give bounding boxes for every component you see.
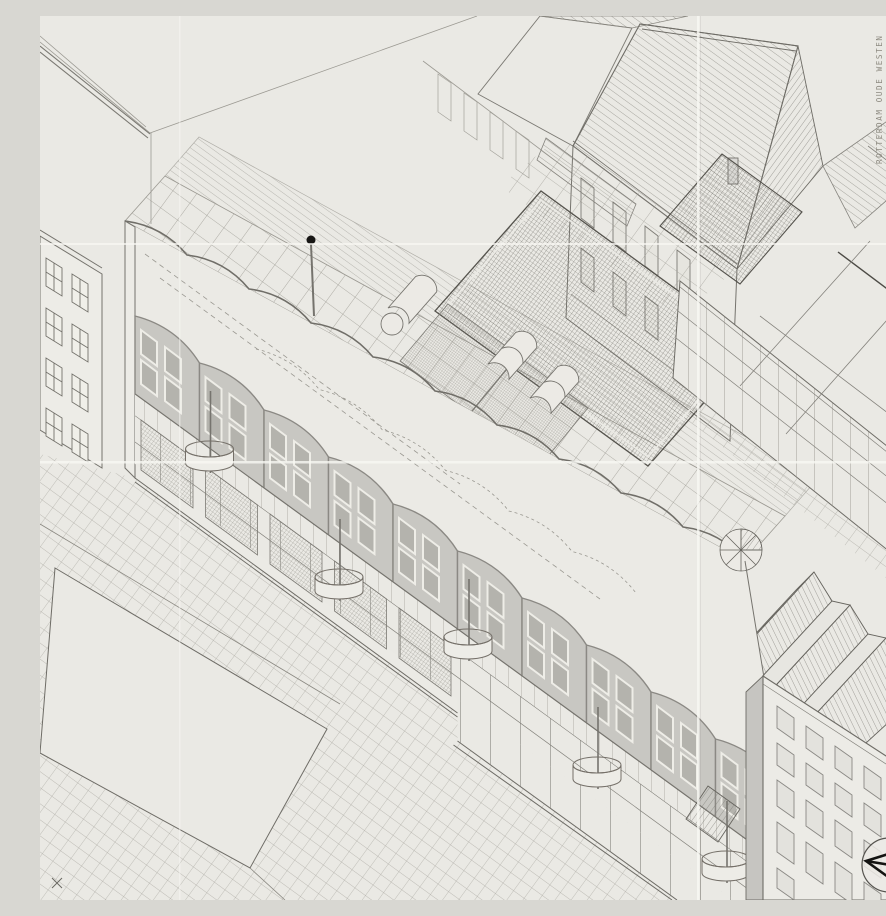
drawing-canvas: ROTTERDAM OUDE WESTEN SCHOOL + BUURTGEBO… [40,16,886,900]
title-line-project: ROTTERDAM OUDE WESTEN [875,34,884,164]
side-wall [746,676,763,900]
block-end-wall [125,221,135,478]
axonometric-drawing-sheet: ROTTERDAM OUDE WESTEN SCHOOL + BUURTGEBO… [40,16,886,900]
spiral-stair [720,529,762,571]
roof-vent-circle [381,313,403,335]
